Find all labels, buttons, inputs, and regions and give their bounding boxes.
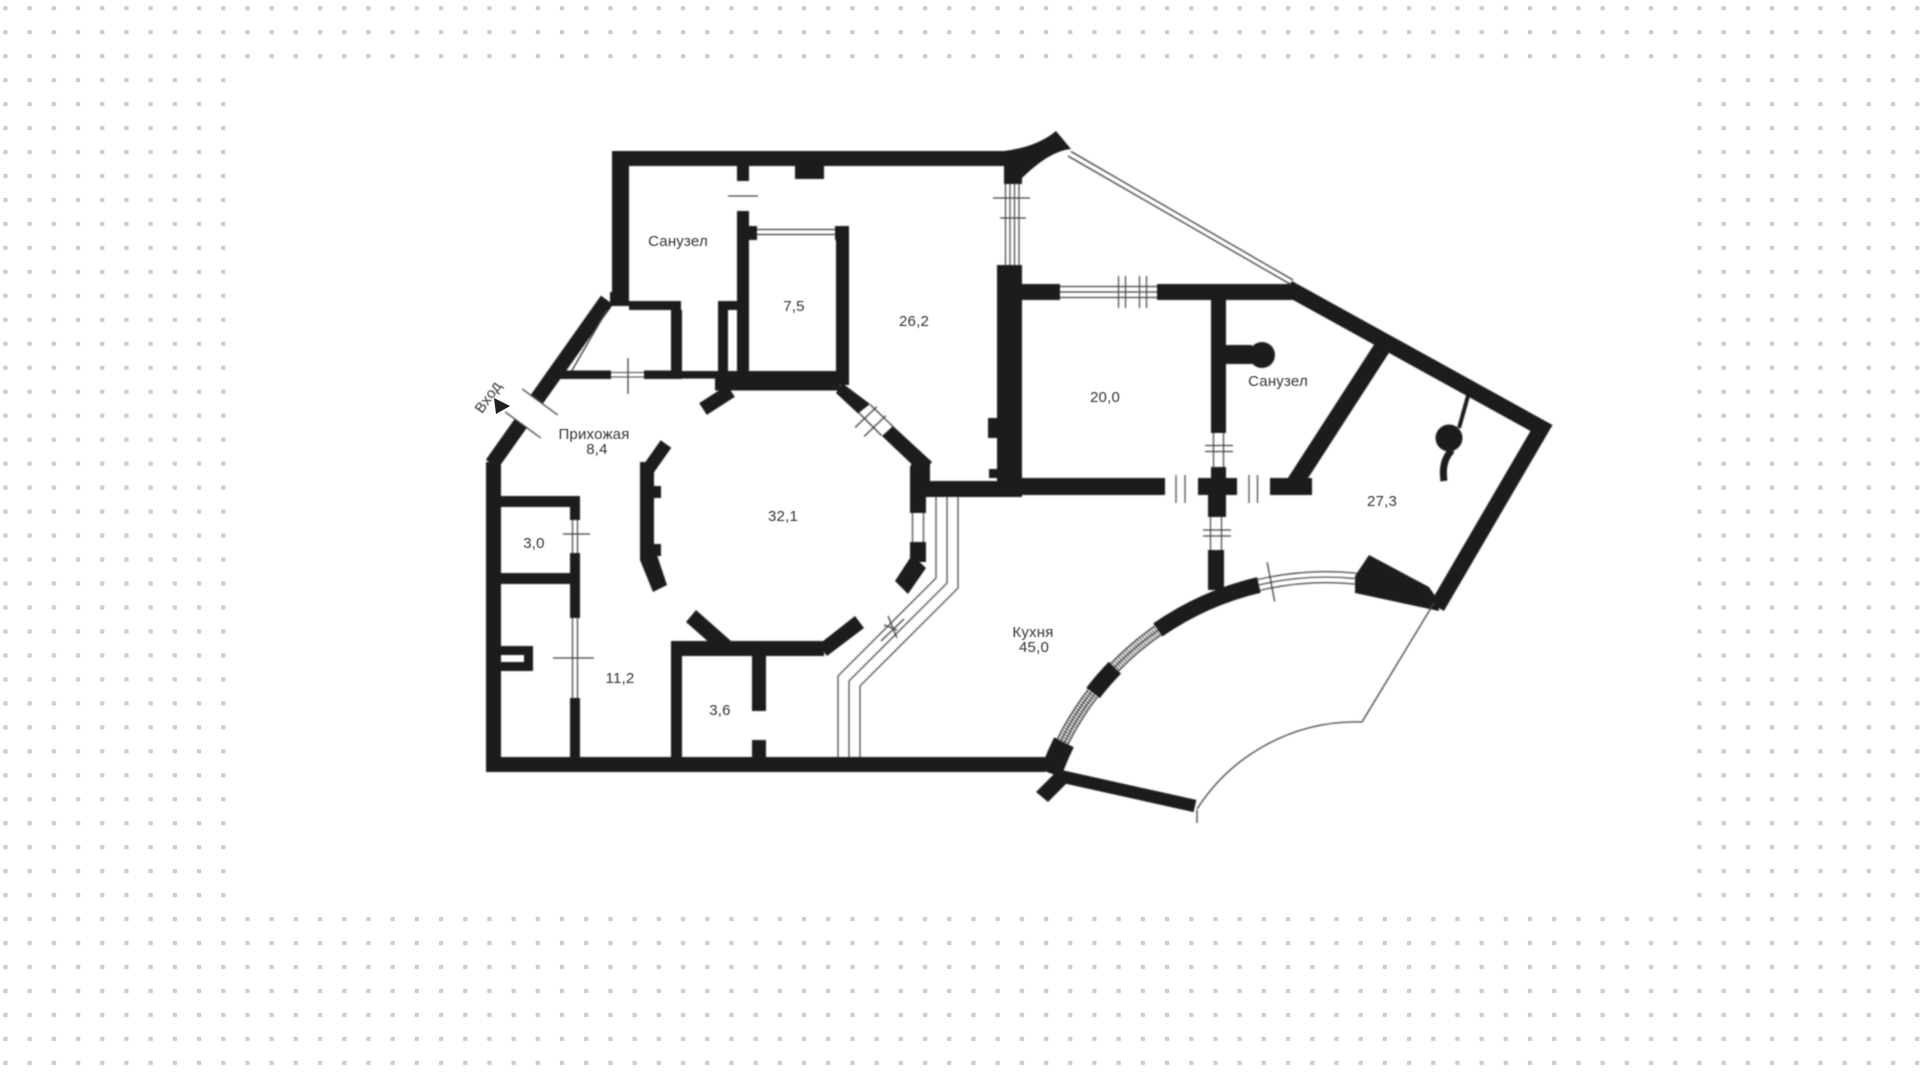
svg-text:7,5: 7,5	[783, 298, 804, 315]
svg-text:8,4: 8,4	[586, 441, 607, 458]
svg-text:45,0: 45,0	[1019, 639, 1049, 656]
svg-text:Санузел: Санузел	[648, 233, 708, 250]
svg-text:32,1: 32,1	[768, 508, 798, 525]
svg-text:26,2: 26,2	[899, 313, 929, 330]
svg-text:Санузел: Санузел	[1248, 373, 1308, 390]
svg-text:11,2: 11,2	[606, 670, 635, 687]
svg-text:27,3: 27,3	[1367, 493, 1397, 510]
svg-text:20,0: 20,0	[1090, 389, 1120, 406]
svg-text:3,0: 3,0	[523, 535, 544, 552]
svg-text:3,6: 3,6	[709, 702, 730, 719]
